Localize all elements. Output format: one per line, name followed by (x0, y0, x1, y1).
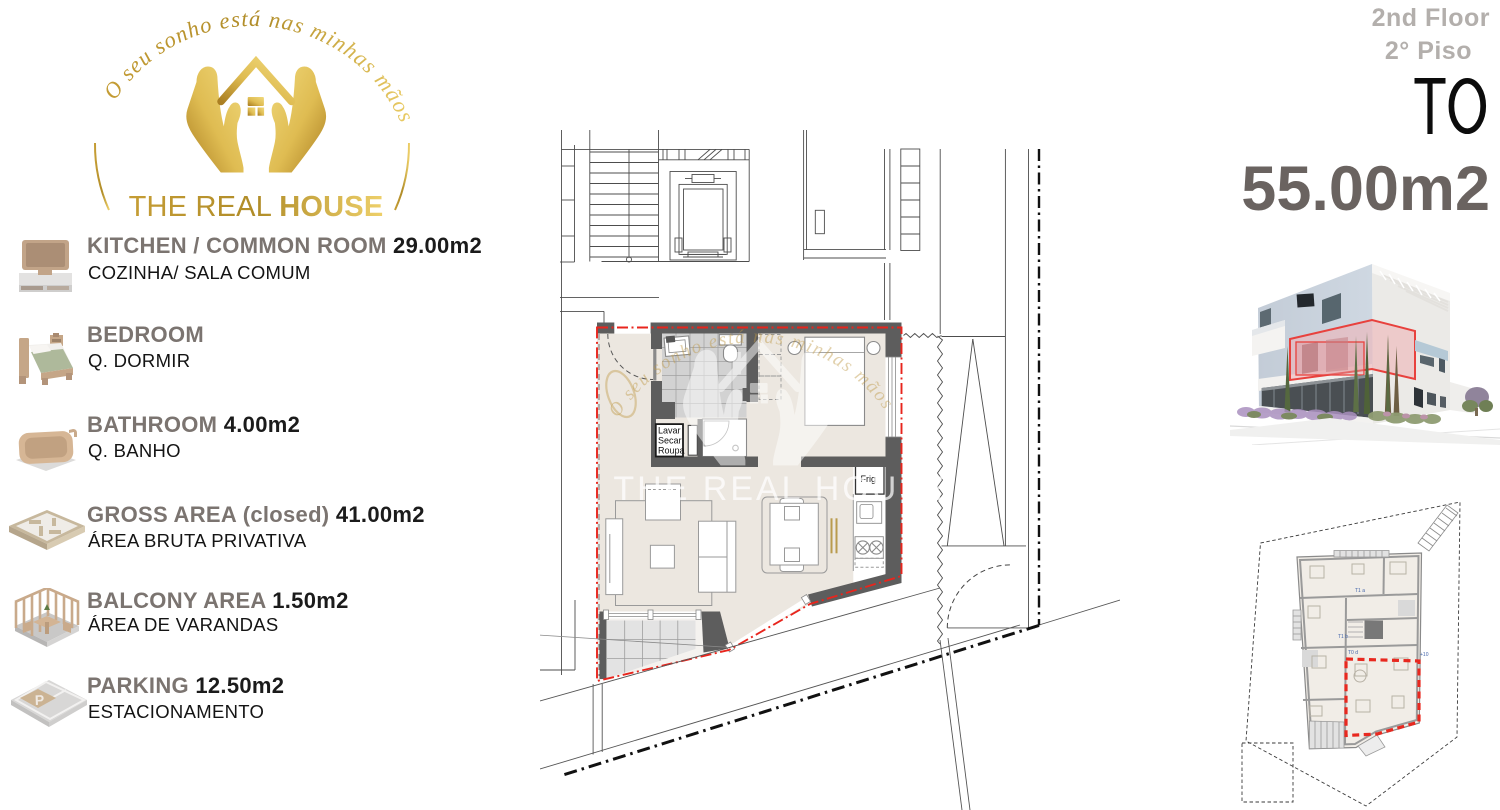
svg-text:Lavar: Lavar (658, 426, 681, 436)
svg-text:T0 d: T0 d (1348, 650, 1358, 656)
svg-text:Secar: Secar (658, 436, 682, 446)
svg-text:THE REAL HOUSE: THE REAL HOUSE (613, 470, 950, 508)
svg-text:+10: +10 (1420, 652, 1429, 658)
svg-text:T1 a: T1 a (1355, 588, 1365, 594)
svg-text:THE REAL HOUSE: THE REAL HOUSE (129, 191, 384, 223)
svg-text:Roupa: Roupa (658, 446, 685, 456)
svg-text:P: P (35, 692, 45, 708)
svg-text:T1 b: T1 b (1338, 634, 1348, 640)
